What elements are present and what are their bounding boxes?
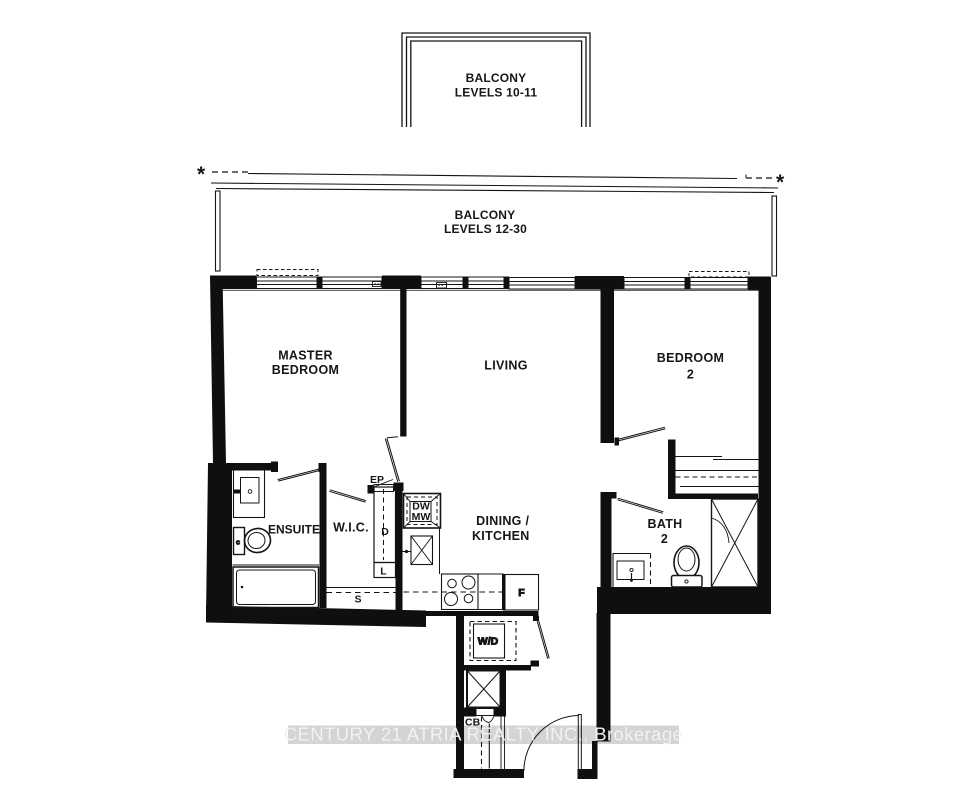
svg-text:LEVELS 10-11: LEVELS 10-11 [455,86,538,100]
svg-text:c: c [236,540,240,547]
svg-text:BALCONY: BALCONY [466,71,527,85]
svg-text:*: * [776,171,785,194]
svg-text:CENTURY 21 ATRIA REALTY INC.,: CENTURY 21 ATRIA REALTY INC., Brokerage [284,724,683,745]
svg-text:BEDROOM: BEDROOM [657,351,724,365]
svg-text:L: L [380,566,387,578]
svg-text:W/D: W/D [478,636,499,648]
svg-text:2: 2 [687,368,694,382]
svg-text:LIVING: LIVING [484,359,527,373]
svg-text:DINING /: DINING / [476,514,529,528]
svg-text:W.I.C.: W.I.C. [333,521,369,535]
svg-text:BALCONY: BALCONY [455,208,516,222]
svg-text:BEDROOM: BEDROOM [272,363,339,377]
svg-text:ENSUITE: ENSUITE [268,523,320,537]
svg-text:MW: MW [412,511,431,523]
svg-text:2: 2 [661,532,668,546]
svg-text:KITCHEN: KITCHEN [472,529,530,543]
svg-text:*: * [197,163,206,186]
svg-text:D: D [381,526,389,538]
svg-text:MASTER: MASTER [278,349,333,363]
svg-text:S: S [354,594,361,606]
svg-text:BATH: BATH [648,517,683,531]
svg-text:F: F [518,587,525,599]
svg-text:LEVELS 12-30: LEVELS 12-30 [444,222,527,236]
